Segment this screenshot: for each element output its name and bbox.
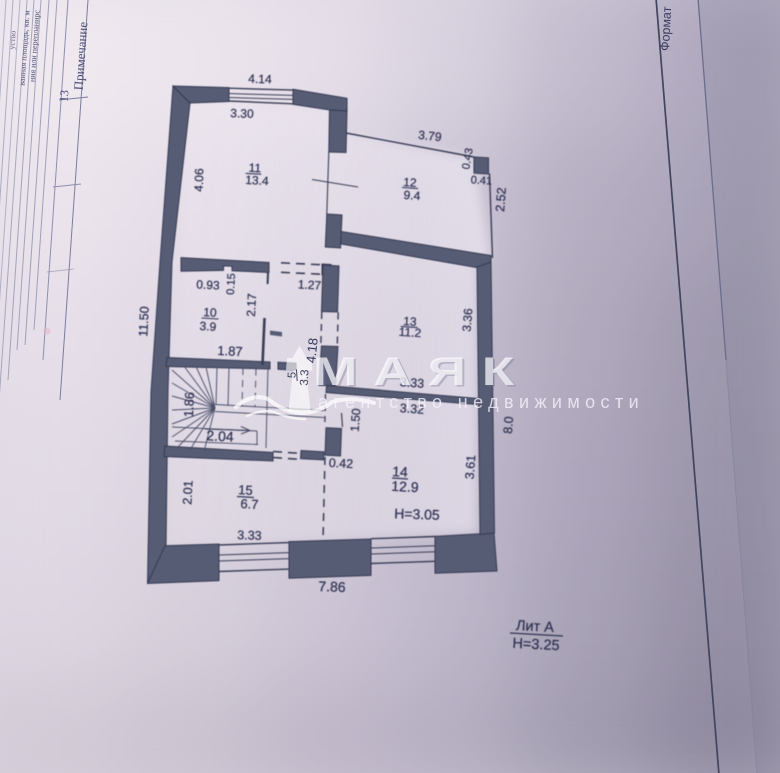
svg-text:агентство недвижимости: агентство недвижимости [318, 392, 644, 412]
svg-text:МАЯК: МАЯК [313, 348, 530, 393]
svg-text:3.3: 3.3 [299, 369, 312, 386]
